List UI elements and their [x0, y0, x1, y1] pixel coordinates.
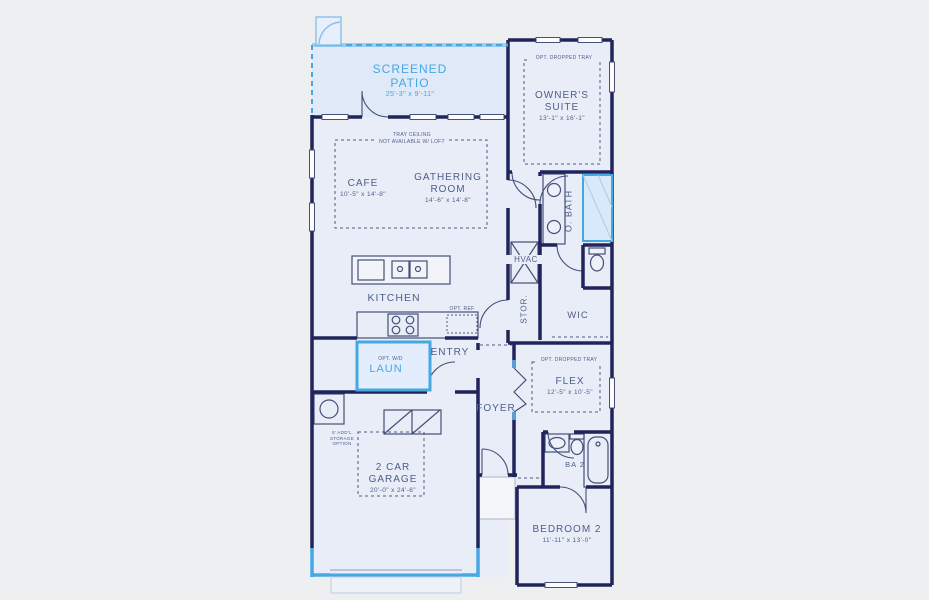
sink-icon	[548, 184, 561, 197]
island-sink-icon	[392, 261, 409, 278]
floorplan-linework	[0, 0, 929, 600]
sink-icon	[548, 221, 561, 234]
front-porch	[478, 477, 515, 519]
sink-icon	[549, 438, 565, 449]
toilet-icon	[570, 434, 584, 455]
toilet-icon	[589, 248, 605, 271]
driveway	[331, 577, 461, 593]
floorplan-canvas: SCREENED PATIO 25'-3" x 9'-11" OPT. DROP…	[0, 0, 929, 600]
laundry-highlight	[357, 342, 430, 390]
patio-fill	[312, 45, 508, 117]
patio-stoop	[316, 17, 341, 45]
island-sink-icon	[410, 261, 427, 278]
